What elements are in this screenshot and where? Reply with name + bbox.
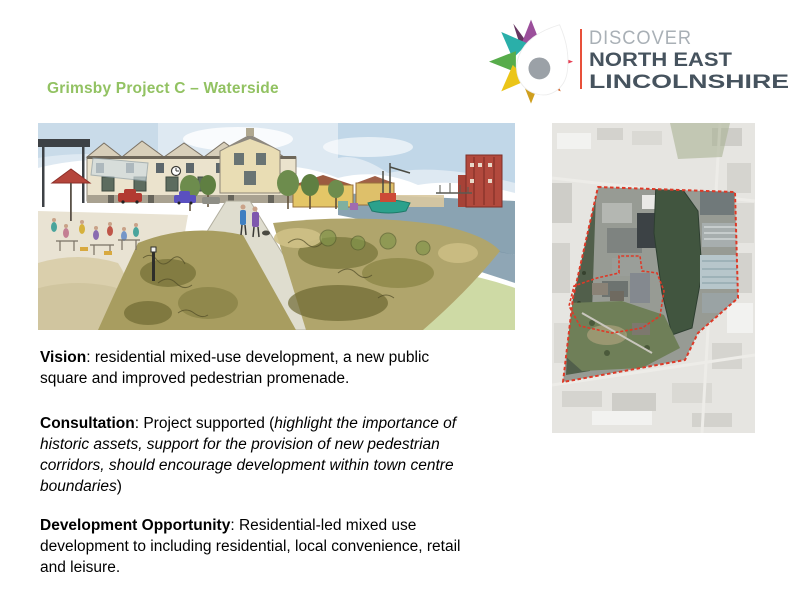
- consultation-italic-line2: historic assets, support for the provisi…: [40, 436, 440, 453]
- logo-text: DISCOVER NORTH EAST LINCOLNSHIRE: [588, 28, 790, 92]
- development-paragraph: Development Opportunity: Residential-led…: [40, 515, 460, 578]
- logo-line-north-east: NORTH EAST: [589, 50, 732, 71]
- development-text-line2: development to including residential, lo…: [40, 538, 460, 555]
- development-label: Development Opportunity: [40, 517, 230, 534]
- logo-line-lincolnshire: LINCOLNSHIRE: [589, 72, 789, 92]
- waterside-illustration-image: [38, 123, 515, 330]
- consultation-italic-line1: highlight the importance of: [274, 415, 456, 432]
- slide: Grimsby Project C – Waterside DISCOVER N…: [0, 0, 794, 595]
- vision-paragraph: Vision: residential mixed-use developmen…: [40, 347, 429, 389]
- consultation-paragraph: Consultation: Project supported (highlig…: [40, 413, 456, 497]
- vision-text-line2: square and improved pedestrian promenade…: [40, 370, 349, 387]
- vision-label: Vision: [40, 349, 86, 366]
- consultation-label: Consultation: [40, 415, 135, 432]
- development-text-line3: and leisure.: [40, 559, 120, 576]
- logo-divider: [580, 29, 582, 89]
- logo-star-icon: [489, 16, 573, 104]
- consultation-italic-line4: boundaries: [40, 478, 117, 495]
- consultation-close-paren: ): [117, 478, 122, 495]
- logo: DISCOVER NORTH EAST LINCOLNSHIRE: [489, 14, 790, 118]
- consultation-text: : Project supported (: [135, 415, 275, 432]
- development-text: : Residential-led mixed use: [230, 517, 416, 534]
- aerial-map-image: [552, 123, 755, 433]
- logo-line-discover: DISCOVER: [589, 28, 692, 49]
- vision-text: : residential mixed-use development, a n…: [86, 349, 429, 366]
- page-title: Grimsby Project C – Waterside: [47, 80, 279, 98]
- consultation-italic-line3: corridors, should encourage development …: [40, 457, 454, 474]
